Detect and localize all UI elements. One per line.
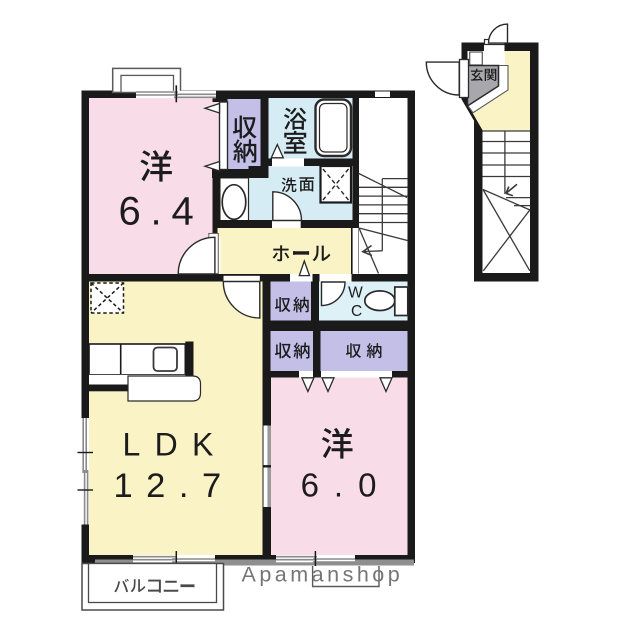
svg-text:C: C xyxy=(351,303,362,320)
svg-text:6.0: 6.0 xyxy=(301,467,392,504)
svg-text:W: W xyxy=(348,285,363,302)
svg-text:LDK: LDK xyxy=(123,427,228,463)
svg-text:12.7: 12.7 xyxy=(114,467,235,505)
svg-text:6.4: 6.4 xyxy=(118,190,203,234)
svg-text:Apamanshop: Apamanshop xyxy=(242,562,404,586)
